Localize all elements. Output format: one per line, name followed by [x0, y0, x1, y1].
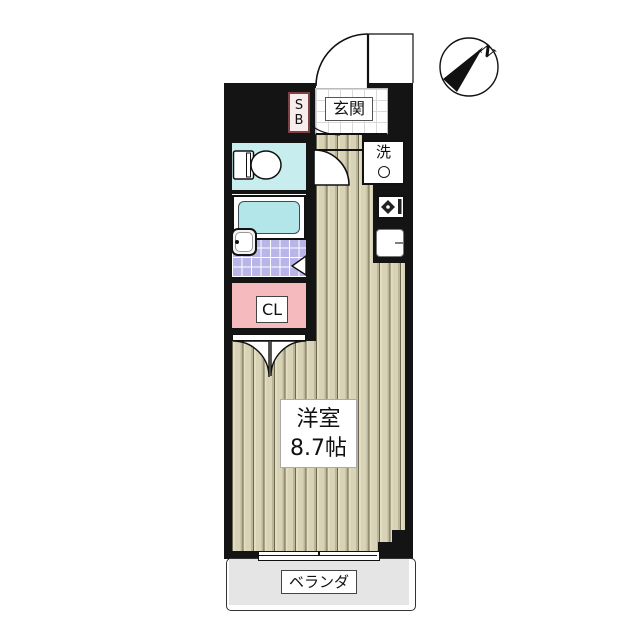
closet-label: CL [262, 300, 282, 319]
veranda-label-box: ベランダ [281, 570, 357, 594]
main-room-name: 洋室 [296, 405, 340, 434]
corner-notch-wall-a [392, 530, 413, 551]
shoe-box: S B [288, 92, 310, 133]
closet-door-track [232, 334, 306, 341]
toilet-room [232, 143, 306, 190]
laundry-circle [378, 166, 390, 178]
veranda-label: ベランダ [289, 575, 349, 590]
compass: N [440, 38, 499, 96]
compass-north-label: N [475, 39, 499, 63]
compass-circle [440, 38, 498, 96]
wash-basin-faucet-dot [235, 240, 239, 244]
entrance-step-line [316, 149, 362, 151]
floor-plan: S B CL 洗 玄関 洋室 8.7帖 [0, 0, 640, 640]
main-room-label-box: 洋室 8.7帖 [280, 399, 357, 468]
front-door-arc [316, 34, 368, 86]
window-track-line [259, 555, 377, 556]
laundry-box: 洗 [362, 140, 405, 185]
window-center-tick [318, 552, 320, 555]
wash-basin [231, 228, 257, 256]
main-room-size: 8.7帖 [290, 434, 347, 463]
laundry-label: 洗 [376, 144, 391, 161]
corner-notch-wall-b [378, 542, 392, 551]
shoe-box-label-line2: B [295, 113, 304, 128]
shoe-box-label-line1: S [295, 98, 303, 113]
kitchen-sink [376, 229, 404, 257]
closet-label-box: CL [256, 296, 288, 323]
stove-box [377, 195, 405, 219]
porch-outline [368, 34, 413, 83]
sliding-window [258, 551, 380, 561]
entrance-label: 玄関 [333, 101, 365, 117]
compass-needle [443, 47, 483, 92]
entrance-label-box: 玄関 [325, 97, 373, 121]
